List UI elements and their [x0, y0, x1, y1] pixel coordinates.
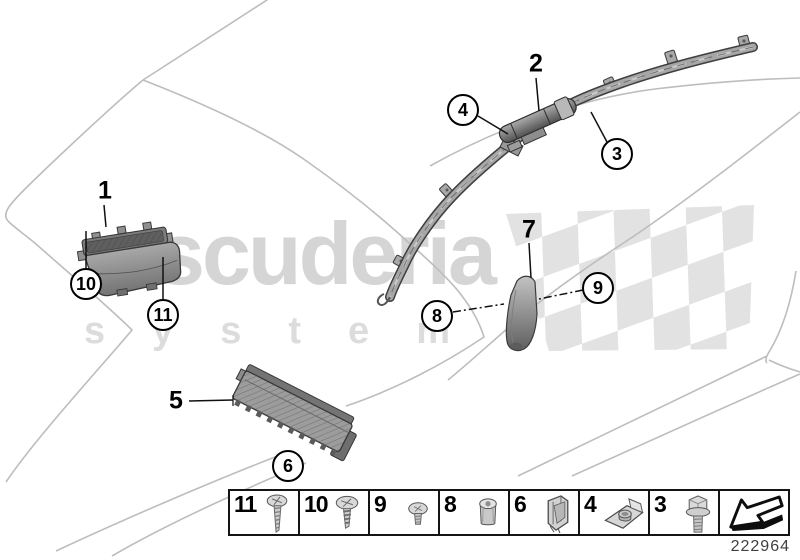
knee-airbag-part [225, 362, 363, 462]
drawing-number: 222964 [690, 538, 790, 556]
screw-long-icon [260, 493, 296, 536]
legend-number: 6 [514, 493, 526, 516]
spring-clip-icon [540, 493, 576, 536]
legend-cell-6: 6 [508, 489, 580, 536]
legend-cell-10: 10 [298, 489, 370, 536]
callout-9[interactable]: 9 [582, 272, 614, 304]
airbag-parts-diagram: scuderia system [0, 0, 800, 560]
flange-bolt-icon [680, 493, 716, 536]
diagram-canvas [0, 0, 800, 560]
legend-cell-9: 9 [368, 489, 440, 536]
legend-number: 11 [234, 493, 256, 516]
watermark-checker-flag [506, 205, 754, 351]
legend-number: 10 [304, 493, 328, 516]
page-turn-arrow-icon [723, 492, 787, 535]
screw-coarse-icon [330, 493, 366, 536]
callout-3[interactable]: 3 [601, 138, 633, 170]
callout-2[interactable]: 2 [529, 52, 543, 77]
callout-10[interactable]: 10 [70, 268, 102, 300]
callout-6[interactable]: 6 [272, 450, 304, 482]
legend-cell-3: 3 [648, 489, 720, 536]
pillar-trim-part [506, 276, 537, 350]
legend-number: 3 [654, 493, 666, 516]
callout-1[interactable]: 1 [98, 179, 112, 204]
legend-number: 9 [374, 493, 386, 516]
screw-small-icon [400, 493, 436, 536]
callout-11[interactable]: 11 [147, 299, 179, 331]
speed-nut-icon [602, 493, 646, 536]
legend-cell-4: 4 [578, 489, 650, 536]
callout-4[interactable]: 4 [447, 94, 479, 126]
legend-cell-11: 11 [228, 489, 300, 536]
legend-number: 8 [444, 493, 456, 516]
callout-7[interactable]: 7 [522, 218, 536, 243]
sleeve-nut-icon [470, 493, 506, 536]
legend-cell-arrow [718, 489, 790, 536]
legend-cell-8: 8 [438, 489, 510, 536]
callout-5[interactable]: 5 [169, 389, 183, 414]
legend-number: 4 [584, 493, 596, 516]
callout-8[interactable]: 8 [421, 300, 453, 332]
fastener-legend: 11 10 9 [228, 489, 790, 536]
